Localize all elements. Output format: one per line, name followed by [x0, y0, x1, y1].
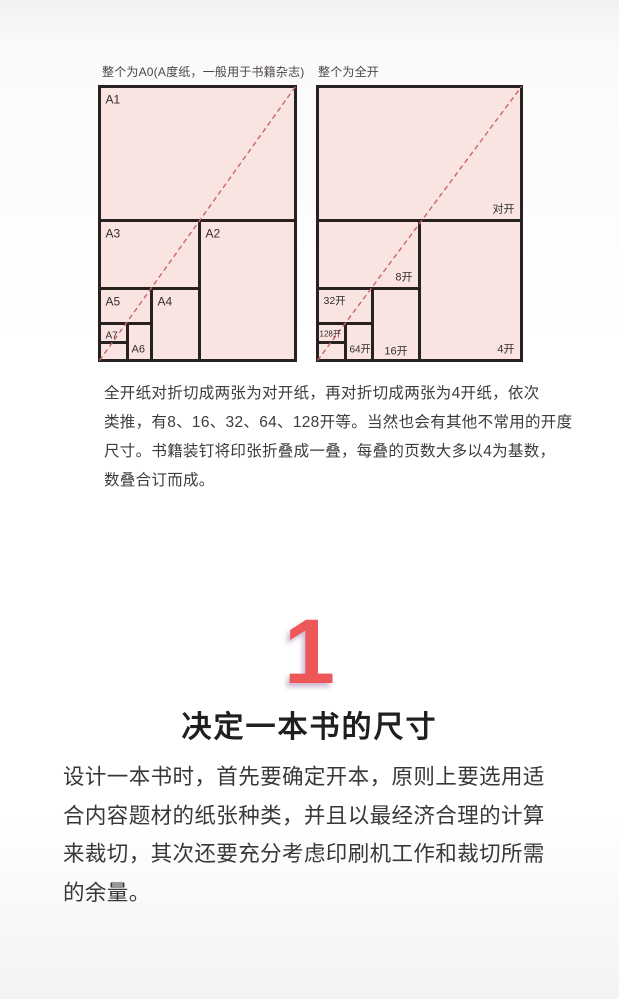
section-title: 决定一本书的尺寸: [0, 702, 619, 746]
paper-cell-label-32开: 32开: [324, 295, 346, 307]
section-number: 1: [0, 606, 619, 698]
paper-cell-4开: [420, 221, 522, 361]
paper-cell-blank: [318, 343, 346, 361]
paper-cell-label-4开: 4开: [497, 344, 514, 356]
paper-cell-A1: [100, 87, 296, 221]
paper-cell-label-64开: 64开: [350, 345, 371, 356]
diagram-caption-quankai: 整个为全开: [318, 63, 379, 80]
paper-cell-label-A7: A7: [106, 331, 119, 342]
figure-note: 全开纸对折切成两张为对开纸，再对折切成两张为4开纸，依次 类推，有8、16、32…: [104, 379, 574, 495]
paper-cell-label-A2: A2: [206, 227, 221, 241]
article-page: 整个为A0(A度纸，一般用于书籍杂志) 整个为全开 A1A2A3A4A5A6A7…: [0, 0, 619, 999]
paper-cell-label-A3: A3: [106, 227, 121, 241]
paper-cell-label-A1: A1: [106, 93, 121, 107]
paper-cell-label-A5: A5: [106, 295, 121, 309]
section-body: 设计一本书时，首先要确定开本，原则上要选用适 合内容题材的纸张种类，并且以最经济…: [63, 758, 568, 912]
paper-cell-label-对开: 对开: [493, 202, 515, 216]
paper-cell-label-A4: A4: [158, 295, 173, 309]
paper-cell-label-8开: 8开: [395, 272, 412, 284]
paper-cell-label-16开: 16开: [384, 346, 407, 358]
diagram-caption-a0: 整个为A0(A度纸，一般用于书籍杂志): [102, 63, 304, 80]
paper-size-diagram-kai-series: 对开4开8开16开32开64开128开: [315, 84, 524, 363]
paper-cell-label-A6: A6: [132, 344, 145, 356]
paper-cell-对开: [318, 87, 522, 221]
paper-cell-blank: [100, 343, 128, 361]
paper-cell-A2: [200, 221, 296, 361]
paper-cell-label-128开: 128开: [320, 330, 341, 339]
paper-size-diagram-a-series: A1A2A3A4A5A6A7: [97, 84, 298, 363]
